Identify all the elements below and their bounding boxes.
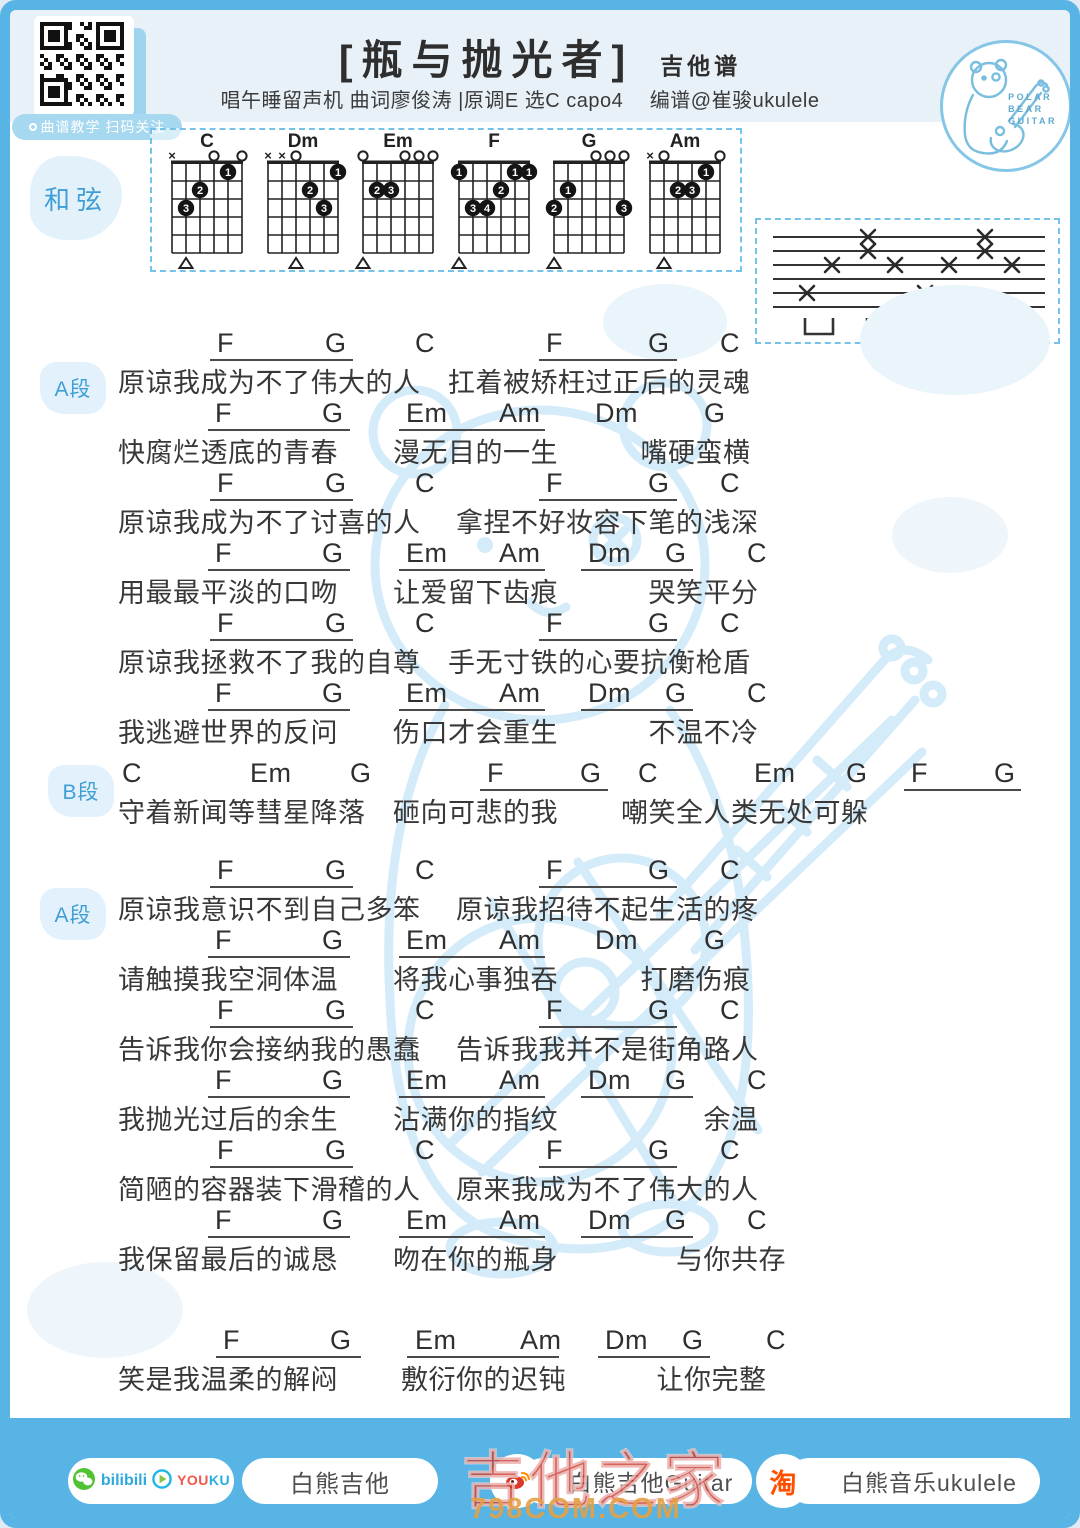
chord-label: F: [215, 1065, 232, 1096]
chord-label: Am: [499, 398, 541, 429]
channel-name-guitar: 白熊吉他: [290, 1464, 390, 1499]
lyric-line: 原谅我成为不了伟大的人 扛着被矫枉过正后的灵魂: [118, 361, 1078, 400]
logo-word-bear: BEAR: [1008, 103, 1057, 115]
chord-label: G: [648, 855, 670, 886]
svg-text:2: 2: [675, 185, 681, 197]
chord-label: F: [911, 758, 928, 789]
chord-label: G: [648, 608, 670, 639]
chord-row: FGEmAmDmG: [10, 398, 1080, 431]
chord-label: G: [325, 608, 347, 639]
lyric-line: 快腐烂透底的青春 漫无目的一生 嘴硬蛮横: [118, 431, 1078, 470]
chord-label: G: [325, 1135, 347, 1166]
chord-label: G: [704, 398, 726, 429]
chord-label: Dm: [588, 1065, 631, 1096]
chord-label: C: [415, 855, 435, 886]
chord-label: C: [638, 758, 658, 789]
channel-pill-guitar: 白熊吉他: [242, 1458, 438, 1504]
chord-row: FGEmAmDmGC: [10, 1065, 1080, 1098]
channel-pill-taobao: 白熊音乐ukulele: [786, 1458, 1040, 1504]
chord-label: C: [766, 1325, 786, 1356]
chord-label: G: [704, 925, 726, 956]
svg-text:Am: Am: [670, 132, 701, 152]
lyric-line: 原谅我意识不到自己多笨 原谅我招待不起生活的疼: [118, 888, 1078, 927]
chord-label: G: [325, 995, 347, 1026]
svg-text:1: 1: [565, 185, 571, 197]
chord-label: F: [215, 538, 232, 569]
chord-label: G: [350, 758, 372, 789]
chord-label: F: [215, 678, 232, 709]
chord-label: G: [665, 538, 687, 569]
svg-text:Em: Em: [383, 132, 413, 152]
chord-label: C: [122, 758, 142, 789]
chord-sheet-page: 曲谱教学 扫码关注 [瓶与抛光者] 吉他谱 唱午睡留声机 曲词廖俊涛 |原调E …: [0, 0, 1080, 1528]
chord-label: F: [546, 855, 563, 886]
chord-label: Em: [406, 538, 448, 569]
chord-label: G: [665, 1065, 687, 1096]
chord-label: C: [747, 1205, 767, 1236]
chord-label: Em: [406, 1065, 448, 1096]
svg-text:1: 1: [456, 167, 462, 179]
svg-text:F: F: [488, 132, 500, 152]
chord-label: C: [720, 995, 740, 1026]
chord-label: Am: [520, 1325, 562, 1356]
logo-word-guitar: GUITAR: [1008, 115, 1057, 127]
youku-play-icon: [152, 1469, 172, 1494]
lyric-line: 笑是我温柔的解闷 敷衍你的迟钝 让你完整: [118, 1358, 1078, 1397]
chord-label: G: [322, 1205, 344, 1236]
chord-label: F: [223, 1325, 240, 1356]
site-watermark-url: 798COM.COM: [470, 1493, 682, 1526]
bilibili-logo: bilibili: [101, 1472, 147, 1490]
svg-text:3: 3: [183, 203, 189, 215]
chord-label: F: [546, 1135, 563, 1166]
chord-label: C: [415, 328, 435, 359]
chord-label: G: [322, 925, 344, 956]
svg-text:2: 2: [307, 185, 313, 197]
chord-label: G: [648, 328, 670, 359]
chord-label: C: [415, 608, 435, 639]
lyric-line: 我保留最后的诚恳 吻在你的瓶身 与你共存: [118, 1238, 1078, 1277]
chord-row: FGCFGC: [10, 608, 1080, 641]
chord-label: Dm: [588, 678, 631, 709]
chord-label: G: [325, 855, 347, 886]
chord-diagram-Em: Em23: [351, 132, 445, 270]
chords-panel-label-blob: 和弦: [30, 156, 122, 240]
svg-text:2: 2: [551, 203, 557, 215]
chord-diagram-Am: Am×123: [638, 132, 732, 270]
chord-label: G: [330, 1325, 352, 1356]
logo-word-polar: POLAR: [1008, 91, 1057, 103]
chord-label: C: [720, 608, 740, 639]
chord-label: G: [580, 758, 602, 789]
chord-label: Am: [499, 1205, 541, 1236]
chord-label: C: [415, 995, 435, 1026]
svg-text:1: 1: [703, 167, 709, 179]
chord-label: Am: [499, 1065, 541, 1096]
lyric-line: 守着新闻等彗星降落 砸向可悲的我 嘲笑全人类无处可躲: [118, 791, 1078, 830]
chord-label: C: [720, 1135, 740, 1166]
chord-label: G: [322, 1065, 344, 1096]
qr-caption: 曲谱教学 扫码关注: [41, 117, 166, 137]
chord-diagram-G: G123: [542, 132, 636, 270]
chord-label: Em: [415, 1325, 457, 1356]
svg-text:1: 1: [335, 167, 341, 179]
chord-label: G: [846, 758, 868, 789]
chord-label: G: [325, 468, 347, 499]
chord-label: Am: [499, 678, 541, 709]
polar-bear-guitar-logo: POLAR BEAR GUITAR: [940, 40, 1072, 172]
chord-row: CEmGFGCEmGFG: [10, 758, 1080, 791]
lyric-line: 告诉我你会接纳我的愚蠢 告诉我我并不是街角路人: [118, 1028, 1078, 1067]
svg-text:2: 2: [197, 185, 203, 197]
chord-label: Dm: [605, 1325, 648, 1356]
chord-label: Dm: [588, 538, 631, 569]
svg-text:3: 3: [689, 185, 695, 197]
svg-text:3: 3: [470, 203, 476, 215]
chord-diagram-F: F111234: [447, 132, 541, 270]
chord-label: F: [217, 608, 234, 639]
chord-row: FGEmAmDmGC: [10, 678, 1080, 711]
song-credits: 唱午睡留声机 曲词廖俊涛 |原调E 选C capo4 编谱@崔骏ukulele: [170, 84, 870, 113]
chord-row: FGEmAmDmGC: [10, 1325, 1080, 1358]
social-links-pill: bilibiliYOUKU: [68, 1458, 234, 1504]
chord-label: F: [487, 758, 504, 789]
chord-label: G: [648, 468, 670, 499]
chord-label: F: [217, 995, 234, 1026]
svg-text:Dm: Dm: [287, 132, 318, 152]
chord-label: F: [217, 1135, 234, 1166]
chord-label: C: [415, 1135, 435, 1166]
chord-label: Am: [499, 925, 541, 956]
chord-label: Em: [406, 925, 448, 956]
chord-label: G: [322, 678, 344, 709]
chord-label: G: [325, 328, 347, 359]
lyric-line: 我逃避世界的反问 伤口才会重生 不温不冷: [118, 711, 1078, 750]
chord-label: Dm: [595, 398, 638, 429]
chord-label: F: [217, 855, 234, 886]
svg-text:1: 1: [225, 167, 231, 179]
chord-label: Em: [250, 758, 292, 789]
svg-text:4: 4: [484, 203, 491, 215]
chord-label: G: [665, 1205, 687, 1236]
chord-label: F: [546, 995, 563, 1026]
chord-row: FGCFGC: [10, 468, 1080, 501]
chord-label: Dm: [595, 925, 638, 956]
chord-label: C: [415, 468, 435, 499]
svg-text:C: C: [200, 132, 214, 152]
lyric-line: 用最最平淡的口吻 让爱留下齿痕 哭笑平分: [118, 571, 1078, 610]
chord-label: F: [215, 1205, 232, 1236]
sheet-type-label: 吉他谱: [660, 47, 741, 86]
chords-panel-label: 和弦: [44, 180, 108, 217]
qr-code: [34, 16, 134, 116]
chord-label: C: [720, 328, 740, 359]
chord-label: C: [747, 1065, 767, 1096]
chord-label: C: [720, 468, 740, 499]
svg-text:3: 3: [621, 203, 627, 215]
chord-label: F: [546, 468, 563, 499]
taobao-icon: 淘: [770, 1462, 797, 1501]
chord-label: Em: [406, 398, 448, 429]
strum-pattern-diagram: [757, 220, 1058, 342]
chord-row: FGCFGC: [10, 855, 1080, 888]
wechat-icon: [72, 1467, 96, 1496]
chord-row: FGEmAmDmG: [10, 925, 1080, 958]
chord-row: FGCFGC: [10, 1135, 1080, 1168]
chord-diagram-Dm: Dm××231: [256, 132, 350, 270]
svg-text:3: 3: [321, 203, 327, 215]
chord-label: C: [747, 678, 767, 709]
lyric-line: 原谅我成为不了讨喜的人 拿捏不好妆容下笔的浅深: [118, 501, 1078, 540]
lyric-line: 请触摸我空洞体温 将我心事独吞 打磨伤痕: [118, 958, 1078, 997]
chord-label: F: [217, 328, 234, 359]
chord-label: Dm: [588, 1205, 631, 1236]
title-row: [瓶与抛光者] 吉他谱: [200, 26, 880, 86]
chord-row: FGCFGC: [10, 328, 1080, 361]
chord-label: G: [648, 995, 670, 1026]
chord-label: Am: [499, 538, 541, 569]
lyric-line: 简陋的容器装下滑稽的人 原来我成为不了伟大的人: [118, 1168, 1078, 1207]
chord-row: FGEmAmDmGC: [10, 538, 1080, 571]
svg-text:1: 1: [512, 167, 518, 179]
chord-label: G: [322, 538, 344, 569]
chord-diagrams-panel: C×321Dm××231Em23F111234G123Am×123: [150, 128, 742, 272]
svg-text:1: 1: [526, 167, 532, 179]
chord-row: FGCFGC: [10, 995, 1080, 1028]
chord-label: F: [546, 608, 563, 639]
svg-text:2: 2: [498, 185, 504, 197]
youku-logo: YOUKU: [177, 1472, 230, 1490]
chord-diagram-C: C×321: [160, 132, 254, 270]
lyric-line: 我抛光过后的余生 沾满你的指纹 余温: [118, 1098, 1078, 1137]
chord-label: F: [217, 468, 234, 499]
chord-label: Em: [754, 758, 796, 789]
svg-text:2: 2: [374, 185, 380, 197]
lyric-line: 原谅我拯救不了我的自尊 手无寸铁的心要抗衡枪盾: [118, 641, 1078, 680]
svg-text:G: G: [582, 132, 597, 152]
dot-icon: [29, 123, 37, 131]
chord-label: Em: [406, 678, 448, 709]
chord-label: F: [215, 398, 232, 429]
chord-label: F: [215, 925, 232, 956]
song-title: [瓶与抛光者]: [339, 26, 634, 86]
channel-name-taobao: 白熊音乐ukulele: [841, 1464, 1017, 1498]
chord-label: C: [747, 538, 767, 569]
chord-label: G: [994, 758, 1016, 789]
chord-label: C: [720, 855, 740, 886]
chord-label: F: [546, 328, 563, 359]
chord-label: G: [682, 1325, 704, 1356]
chord-label: G: [322, 398, 344, 429]
chord-label: G: [648, 1135, 670, 1166]
chord-label: Em: [406, 1205, 448, 1236]
taobao-icon-circle: 淘: [756, 1454, 810, 1508]
svg-text:3: 3: [388, 185, 394, 197]
strum-pattern-panel: [755, 218, 1060, 344]
chord-label: G: [665, 678, 687, 709]
chord-row: FGEmAmDmGC: [10, 1205, 1080, 1238]
